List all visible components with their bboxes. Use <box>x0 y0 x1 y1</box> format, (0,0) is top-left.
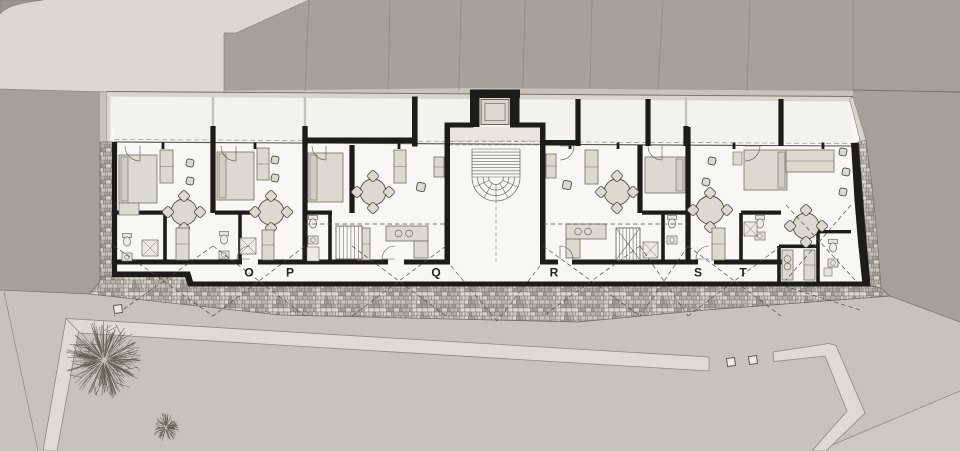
svg-text:O: O <box>244 266 253 280</box>
svg-text:P: P <box>286 266 294 280</box>
svg-text:S: S <box>694 266 702 280</box>
svg-text:Q: Q <box>431 266 440 280</box>
svg-text:R: R <box>550 266 559 280</box>
svg-text:T: T <box>739 266 747 280</box>
